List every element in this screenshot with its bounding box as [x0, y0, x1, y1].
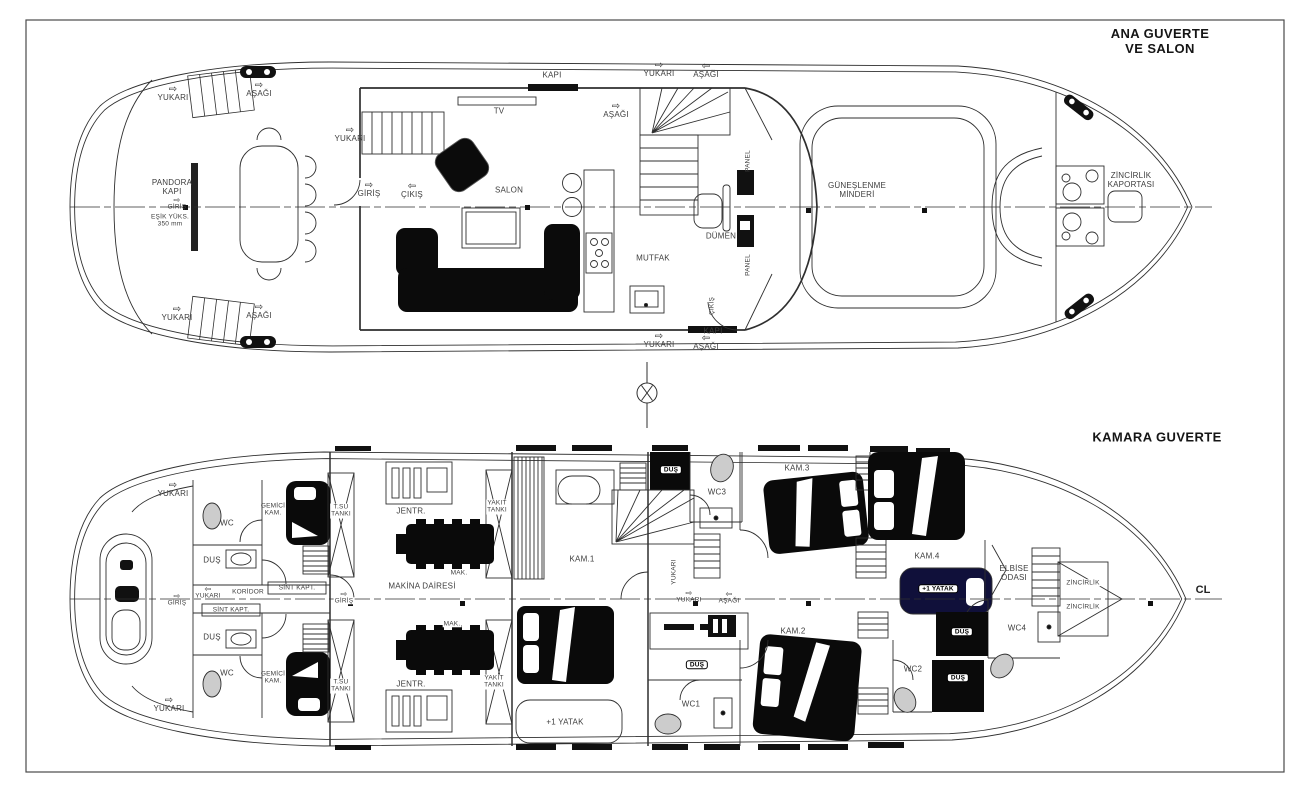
label-text: MUTFAK — [636, 253, 670, 262]
label-text: +1 YATAK — [918, 584, 958, 593]
label-text: AŞAĞI — [693, 342, 718, 351]
label-text: YAKIT TANKI — [486, 500, 508, 515]
label-elbise-odasi: ELBİSE ODASI — [999, 564, 1028, 582]
right-arrow-icon: ⇨ — [346, 127, 355, 134]
label-text: KAM.4 — [914, 551, 939, 560]
label-text: GİRİŞ — [168, 203, 187, 210]
label-yukari: ⇦YUKARI — [195, 586, 220, 599]
label-plus1-yatak-boxed: +1 YATAK — [918, 584, 958, 593]
label-text: YUKARI — [335, 134, 366, 143]
label-kam2: KAM.2 — [780, 626, 805, 635]
label-text: KAM.3 — [784, 463, 809, 472]
label-yukari: YUKARI — [670, 559, 677, 584]
right-arrow-icon: ⇨ — [174, 197, 181, 203]
label-text: YUKARI — [158, 489, 189, 498]
label-wc2: WC2 — [904, 664, 922, 673]
label-text: SALON — [495, 185, 523, 194]
label-text: ELBİSE ODASI — [999, 564, 1028, 582]
label-text: TV — [494, 106, 505, 115]
label-text: GİRİŞ — [358, 189, 381, 198]
label-text: PANEL — [744, 150, 751, 172]
label-sint-kapt: SİNT KAPT. — [279, 584, 316, 591]
label-wc: WC — [220, 518, 234, 527]
label-text: T.SU TANKI — [330, 504, 352, 519]
right-arrow-icon: ⇨ — [255, 82, 264, 89]
label-text: AŞAĞI — [719, 597, 740, 604]
label-giris: ⇨GİRİŞ — [168, 593, 187, 606]
label-pandora-kapi: PANDORA KAPI — [152, 178, 192, 196]
left-arrow-icon: ⇦ — [205, 586, 212, 592]
label-text: WC4 — [1008, 623, 1026, 632]
label-text: GİRİŞ — [334, 597, 355, 604]
label-kam4: KAM.4 — [914, 551, 939, 560]
label-zincirlik-kaportasi: ZİNCİRLİK KAPORTASI — [1108, 171, 1155, 189]
label-zincirlik: ZİNCİRLİK — [1065, 579, 1100, 586]
left-arrow-icon: ⇦ — [702, 63, 711, 70]
label-asagi: ⇦AŞAĞI — [693, 63, 718, 79]
label-text: YUKARI — [162, 313, 193, 322]
right-arrow-icon: ⇨ — [255, 304, 264, 311]
label-asagi: ⇨AŞAĞI — [246, 304, 271, 320]
label-text: JENTR. — [396, 506, 425, 515]
label-text: YUKARI — [195, 592, 220, 599]
label-sint-kapt: SİNT KAPT. — [213, 606, 250, 613]
right-arrow-icon: ⇨ — [655, 333, 664, 340]
label-asagi: ⇦AŞAĞI — [693, 335, 718, 351]
label-cikis: ⇦ÇIKIŞ — [401, 183, 423, 199]
label-text: +1 YATAK — [546, 717, 583, 726]
label-text: PANEL — [744, 254, 751, 276]
label-giris: ⇨GİRİŞ — [168, 197, 187, 210]
label-dus: DUŞ — [203, 632, 221, 641]
left-arrow-icon: ⇦ — [702, 335, 711, 342]
right-arrow-icon: ⇨ — [365, 182, 374, 189]
label-text: ÇIKIŞ — [708, 297, 715, 315]
label-text: DUŞ — [947, 673, 969, 682]
label-text: KORİDOR — [232, 588, 264, 595]
label-text: PANDORA KAPI — [152, 178, 192, 196]
label-yukari: ⇨YUKARI — [644, 62, 675, 78]
label-panel: PANEL — [744, 150, 751, 172]
label-gemici-kam: GEMİCİ KAM. — [261, 671, 285, 686]
right-arrow-icon: ⇨ — [174, 593, 181, 599]
label-yakit-tanki: YAKIT TANKI — [486, 500, 508, 515]
label-text: YUKARI — [644, 69, 675, 78]
label-text: KAM.1 — [569, 554, 594, 563]
label-kapi: KAPI — [703, 326, 722, 335]
label-guneslenme-minderi: GÜNEŞLENME MİNDERİ — [828, 181, 886, 199]
label-yukari: ⇨YUKARI — [158, 482, 189, 498]
label-text: DÜMEN — [706, 231, 736, 240]
label-dus-boxed: DUŞ — [660, 465, 682, 474]
label-mak: MAK. — [443, 620, 462, 627]
label-koridor: KORİDOR — [232, 588, 264, 595]
label-yukari: ⇨YUKARI — [335, 127, 366, 143]
label-kapi: KAPI — [542, 70, 561, 79]
label-text: YUKARI — [154, 704, 185, 713]
label-plus1-yatak: +1 YATAK — [546, 717, 583, 726]
right-arrow-icon: ⇨ — [165, 697, 174, 704]
label-text: WC — [220, 668, 234, 677]
label-dus-boxed: DUŞ — [947, 673, 969, 682]
label-text: YAKIT TANKI — [483, 675, 505, 690]
left-arrow-icon: ⇦ — [408, 183, 417, 190]
label-asagi: ⇨AŞAĞI — [246, 82, 271, 98]
label-tsu-tanki: T.SU TANKI — [330, 679, 352, 694]
label-gemici-kam: GEMİCİ KAM. — [261, 503, 285, 518]
label-text: KAPI — [703, 326, 722, 335]
label-wc3: WC3 — [708, 487, 726, 496]
label-mutfak: MUTFAK — [636, 253, 670, 262]
label-text: GEMİCİ KAM. — [261, 671, 285, 686]
label-text: WC — [220, 518, 234, 527]
right-arrow-icon: ⇨ — [341, 591, 348, 597]
label-tv: TV — [494, 106, 505, 115]
label-text: ÇIKIŞ — [401, 190, 423, 199]
label-text: AŞAĞI — [246, 89, 271, 98]
label-asagi: ⇦AŞAĞI — [719, 591, 740, 604]
label-text: MAK. — [450, 569, 469, 576]
centerline-label: CL — [1196, 584, 1211, 596]
label-text: EŞİK YÜKS. 350 mm — [151, 214, 189, 229]
label-text: SİNT KAPT. — [279, 584, 316, 591]
label-text: ZİNCİRLİK — [1065, 579, 1100, 586]
main-deck-title: ANA GUVERTE VE SALON — [1111, 26, 1210, 56]
label-text: MAKİNA DAİRESİ — [387, 581, 456, 590]
label-salon: SALON — [495, 185, 523, 194]
label-text: KAM.2 — [780, 626, 805, 635]
label-yukari: ⇨YUKARI — [644, 333, 675, 349]
label-text: YUKARI — [158, 93, 189, 102]
label-text: YUKARI — [676, 596, 701, 603]
label-esik-yuks: EŞİK YÜKS. 350 mm — [151, 214, 189, 229]
label-text: YUKARI — [644, 340, 675, 349]
label-text: WC1 — [682, 699, 700, 708]
label-text: DUŞ — [951, 627, 973, 636]
label-yukari: ⇨YUKARI — [158, 86, 189, 102]
right-arrow-icon: ⇨ — [173, 306, 182, 313]
label-text: ZİNCİRLİK KAPORTASI — [1108, 171, 1155, 189]
label-dumen: DÜMEN — [706, 231, 736, 240]
label-panel: PANEL — [744, 254, 751, 276]
label-text: GEMİCİ KAM. — [261, 503, 285, 518]
label-text: WC3 — [708, 487, 726, 496]
deck-plan-canvas: ANA GUVERTE VE SALON KAMARA GUVERTE CL ⇨… — [0, 0, 1303, 795]
label-dus: DUŞ — [203, 555, 221, 564]
right-arrow-icon: ⇨ — [169, 482, 178, 489]
label-wc1: WC1 — [682, 699, 700, 708]
label-giris: ⇨GİRİŞ — [358, 182, 381, 198]
label-text: JENTR. — [396, 679, 425, 688]
label-kam1: KAM.1 — [569, 554, 594, 563]
label-dus-boxed: DUŞ — [951, 627, 973, 636]
label-dus-boxed: DUŞ — [686, 660, 708, 669]
label-text: DUŞ — [660, 465, 682, 474]
cabin-deck-title: KAMARA GUVERTE — [1092, 430, 1221, 445]
right-arrow-icon: ⇨ — [169, 86, 178, 93]
right-arrow-icon: ⇨ — [686, 590, 693, 596]
label-kam3: KAM.3 — [784, 463, 809, 472]
label-text: GÜNEŞLENME MİNDERİ — [828, 181, 886, 199]
label-wc: WC — [220, 668, 234, 677]
label-text: GİRİŞ — [168, 599, 187, 606]
label-cikis: ÇIKIŞ — [708, 297, 715, 315]
label-text: AŞAĞI — [693, 70, 718, 79]
label-text: WC2 — [904, 664, 922, 673]
label-yakit-tanki: YAKIT TANKI — [483, 675, 505, 690]
left-arrow-icon: ⇦ — [726, 591, 733, 597]
label-jentr: JENTR. — [396, 506, 425, 515]
label-tsu-tanki: T.SU TANKI — [330, 504, 352, 519]
label-text: YUKARI — [670, 559, 677, 584]
label-text: MAK. — [443, 620, 462, 627]
label-layer: ANA GUVERTE VE SALON KAMARA GUVERTE CL ⇨… — [0, 0, 1303, 795]
label-asagi: ⇨AŞAĞI — [603, 103, 628, 119]
label-text: SİNT KAPT. — [213, 606, 250, 613]
label-text: AŞAĞI — [246, 311, 271, 320]
label-text: DUŞ — [203, 555, 221, 564]
label-yukari: ⇨YUKARI — [162, 306, 193, 322]
right-arrow-icon: ⇨ — [612, 103, 621, 110]
label-wc4: WC4 — [1008, 623, 1026, 632]
label-zincirlik: ZİNCİRLİK — [1065, 603, 1100, 610]
label-yukari: ⇨YUKARI — [154, 697, 185, 713]
label-text: KAPI — [542, 70, 561, 79]
label-text: ZİNCİRLİK — [1065, 603, 1100, 610]
label-text: DUŞ — [686, 660, 708, 669]
label-text: T.SU TANKI — [330, 679, 352, 694]
label-jentr: JENTR. — [396, 679, 425, 688]
label-text: AŞAĞI — [603, 110, 628, 119]
label-text: DUŞ — [203, 632, 221, 641]
label-yukari: ⇨YUKARI — [676, 590, 701, 603]
label-giris: ⇨GİRİŞ — [334, 591, 355, 604]
label-makina-dairesi: MAKİNA DAİRESİ — [387, 581, 456, 590]
right-arrow-icon: ⇨ — [655, 62, 664, 69]
label-mak: MAK. — [450, 569, 469, 576]
